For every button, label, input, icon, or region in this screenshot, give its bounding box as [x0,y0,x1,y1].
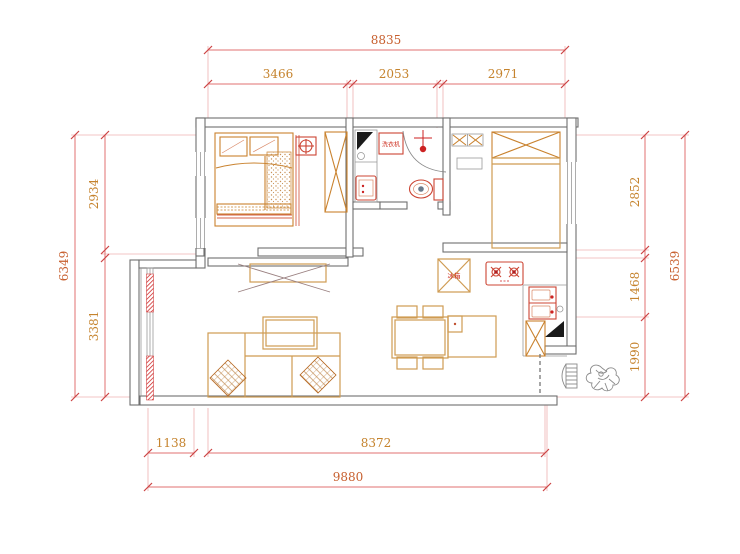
bench [457,158,482,169]
chair [397,306,417,318]
dim-top-seg2: 2053 [379,67,410,81]
sofa-pillow [210,360,246,396]
dim-bottom-seg2: 8372 [361,436,392,450]
counter-corner-icon [357,132,373,150]
blanket [267,152,291,208]
dining-area [392,306,496,369]
bedroom-left [215,132,347,226]
dim-left-seg1: 2934 [87,178,101,209]
bathroom: 洗衣机 [379,130,446,200]
tall-cabinet-icon [526,321,545,356]
kitchen-sink-icon [529,287,556,319]
refrigerator: 冰箱 [438,259,470,292]
dim-left-seg2: 3381 [87,311,101,342]
dim-bottom-seg1: 1138 [156,436,187,450]
dimensions-top: 8835 3466 2053 2971 [204,33,569,128]
sofa-pillow [300,357,336,393]
washing-machine-label: 洗衣机 [382,141,400,149]
toilet-icon [410,179,444,200]
plant-sketch-icon [586,365,619,391]
entry [540,354,619,396]
sofa [208,333,340,397]
chair [397,357,417,369]
door-section-icon [562,364,577,388]
dining-table [392,317,448,358]
counter-corner-icon [545,321,564,337]
dim-top-total: 8835 [371,33,402,47]
wardrobe-icon [492,132,560,158]
chair [423,357,443,369]
chair [423,306,443,318]
stove-icon [486,262,523,285]
dim-right-seg3: 1990 [628,342,642,373]
utility-nook [355,130,377,202]
shoe-shelf-icon [452,134,483,146]
island-counter [448,316,496,357]
washing-machine: 洗衣机 [379,133,403,154]
dimensions-bottom: 1138 8372 9880 [144,402,551,491]
tv-stand [238,264,330,292]
wash-basin-icon [356,176,376,200]
dim-right-seg2: 1468 [628,272,642,303]
dim-bottom-total: 9880 [333,470,364,484]
living-room [208,264,340,397]
kitchen: 冰箱 [438,259,567,356]
bed [492,158,560,248]
dim-top-seg1: 3466 [263,67,294,81]
shower-head-icon [414,130,432,152]
refrigerator-label: 冰箱 [448,271,462,280]
windows [195,152,577,248]
wardrobe-icon [325,132,347,212]
dim-top-seg3: 2971 [488,67,519,81]
bedroom-right [452,132,560,248]
dim-right-seg1: 2852 [628,177,642,208]
dim-left-total: 6349 [57,251,71,282]
dim-right-total: 6539 [668,251,682,282]
floor-plan-canvas: 8835 3466 2053 2971 6349 2934 3381 [0,0,740,554]
